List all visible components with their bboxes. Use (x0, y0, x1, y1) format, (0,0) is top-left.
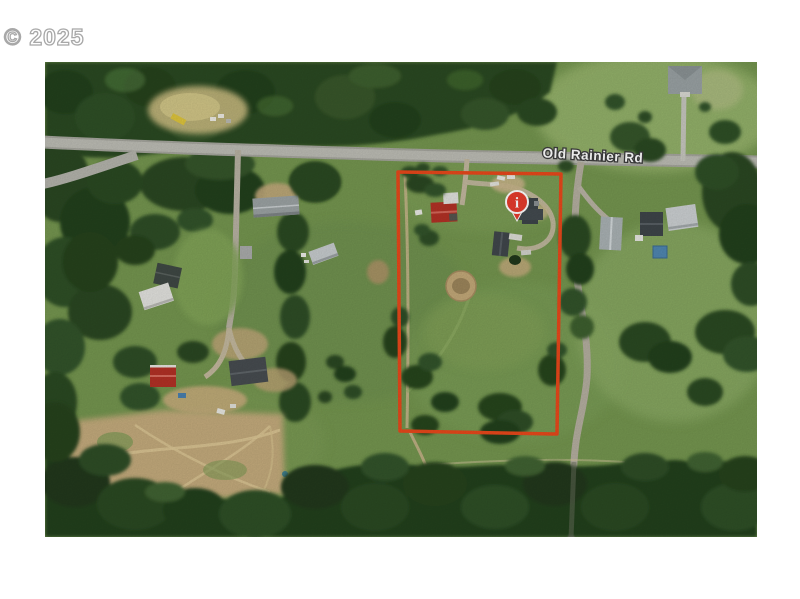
aerial-map-image[interactable]: Old Rainier Rd i (45, 62, 757, 537)
satellite-grain (45, 62, 757, 537)
page: { "watermark": "© 2025", "map": { "road_… (0, 0, 800, 599)
copyright-watermark: © 2025 (4, 24, 85, 51)
